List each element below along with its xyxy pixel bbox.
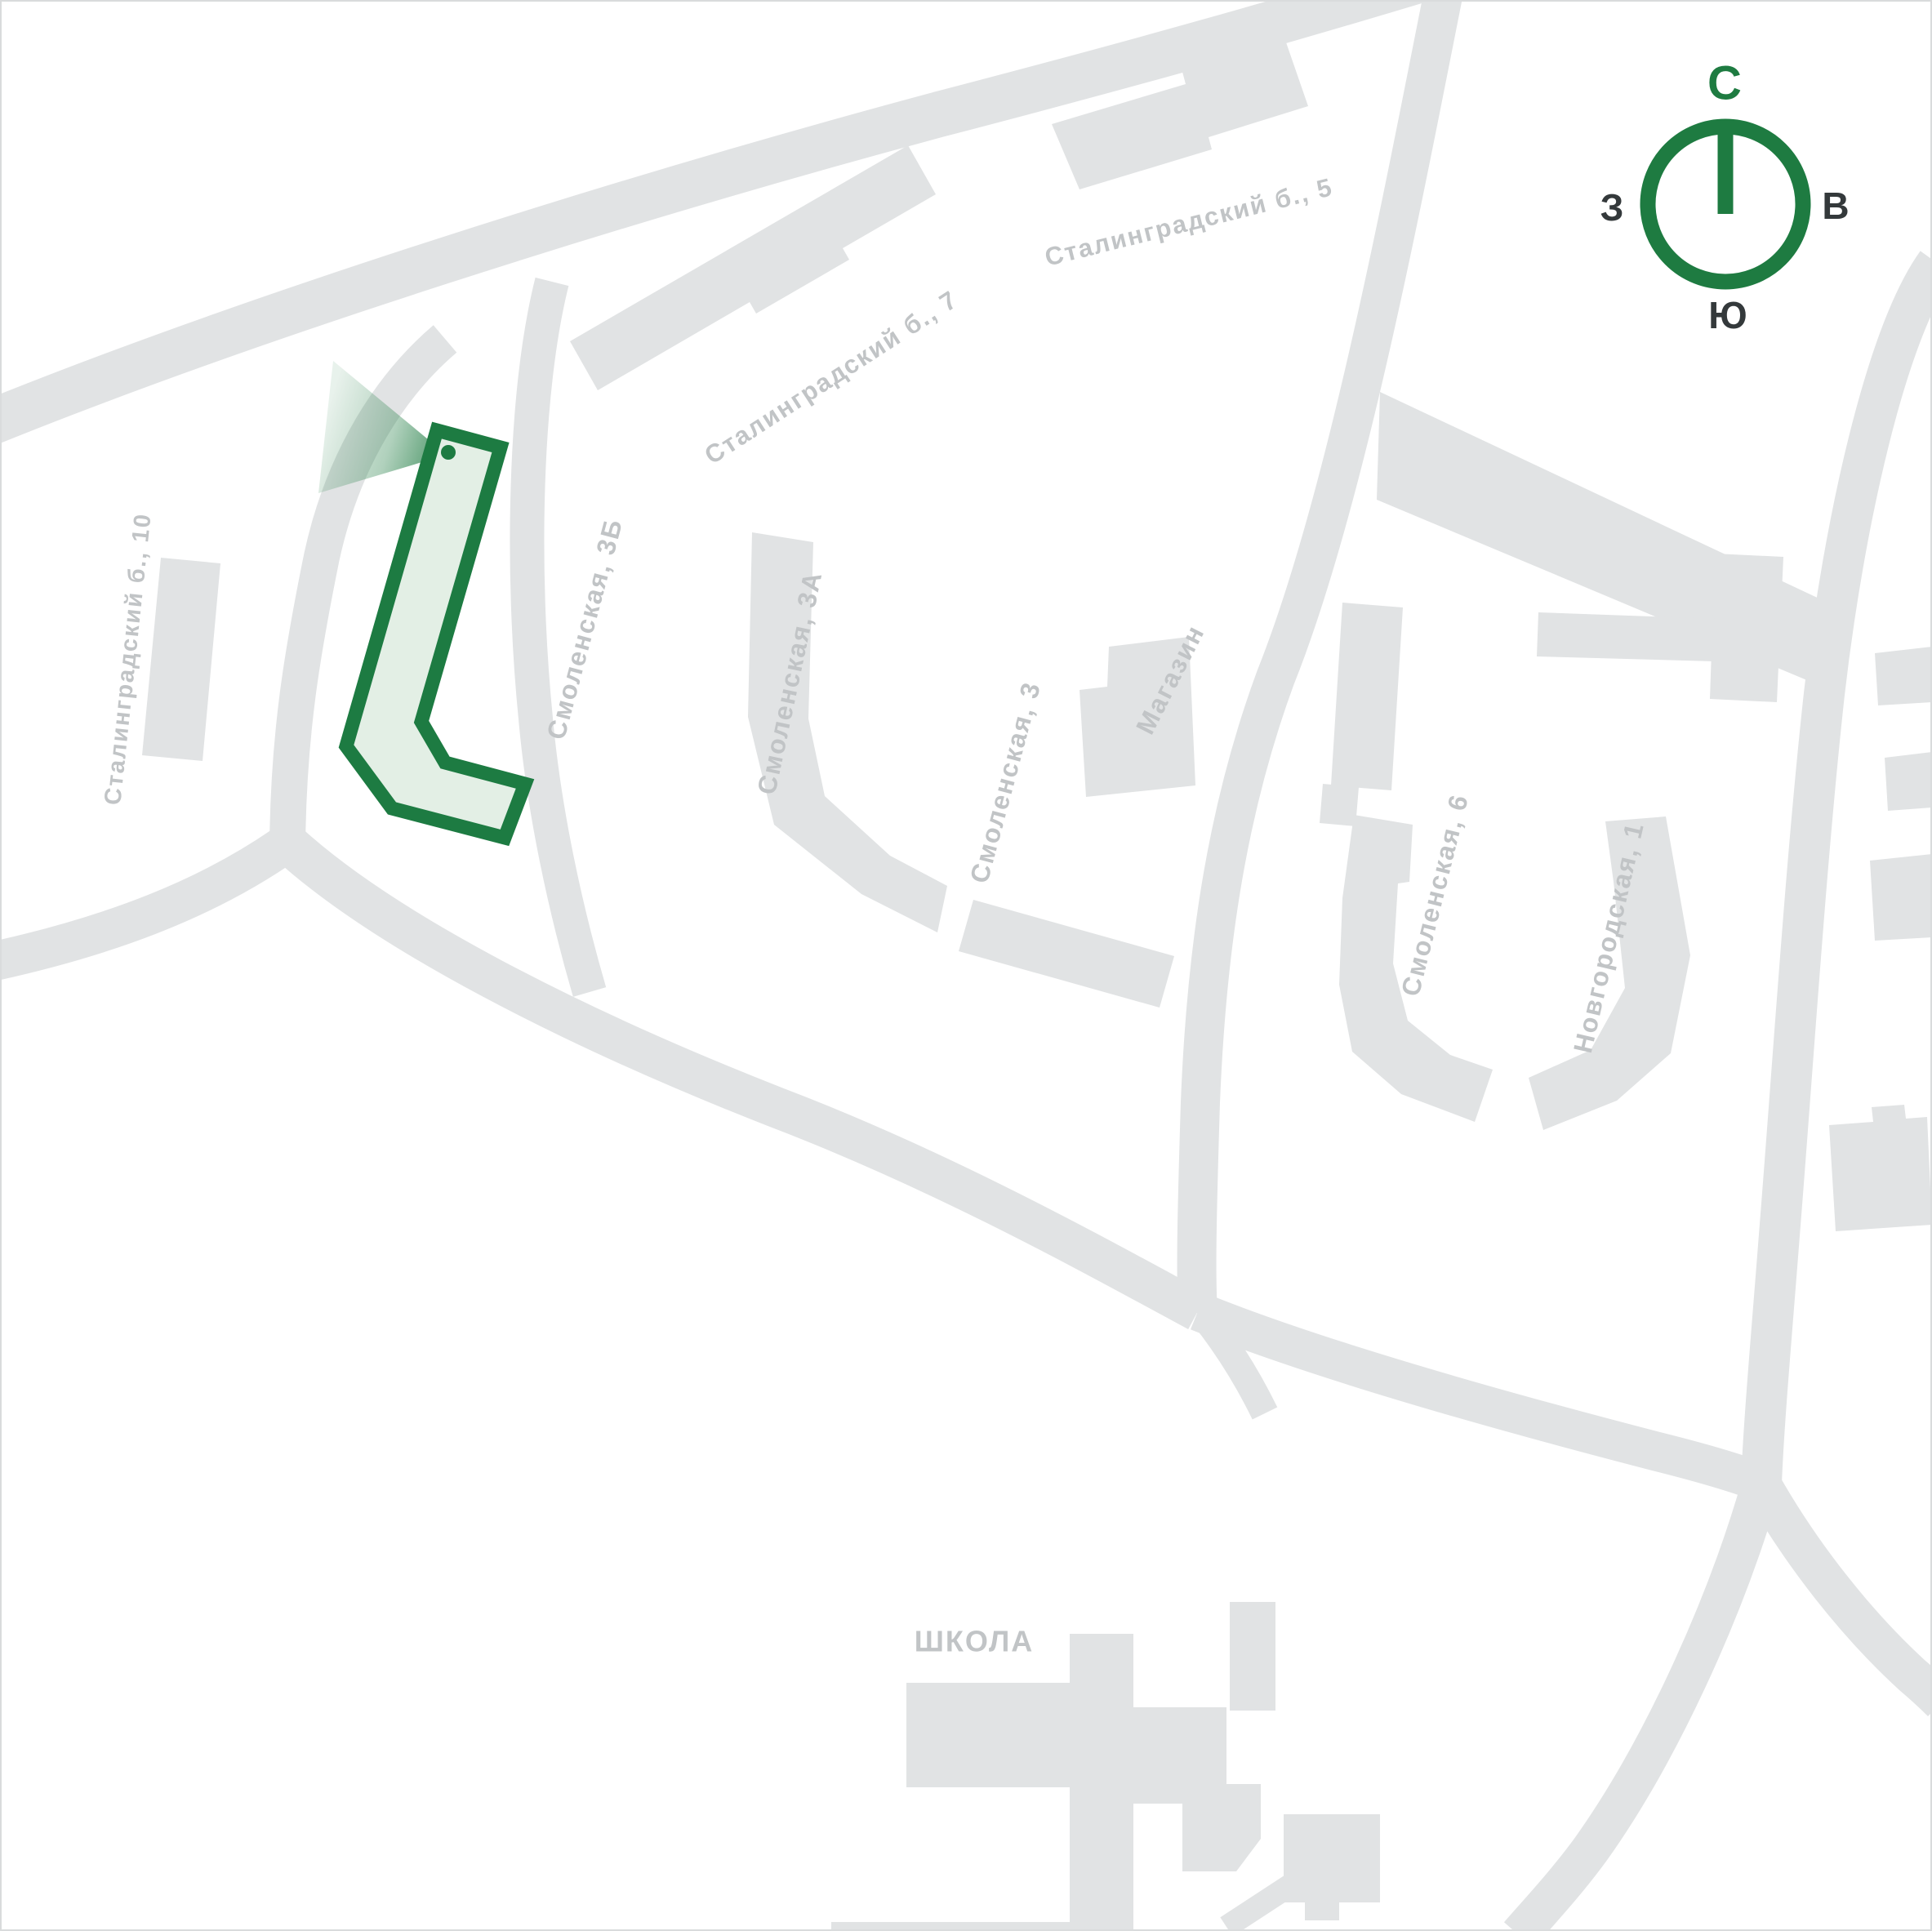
building-unlabeled-l-shape-horizontal [1537,612,1718,661]
compass-north-letter: С [1707,57,1742,110]
compass-south-letter: Ю [1708,294,1747,336]
camera-position-dot [441,445,456,460]
building-unlabeled-vertical-slab [1331,603,1403,790]
label-school: ШКОЛА [915,1625,1035,1658]
school-building-left-wing [906,1683,1075,1787]
location-map: Сталинградский б., 7 Сталинградский б., … [0,0,1932,1931]
building-right-edge-fragment-1 [1875,647,1932,705]
building-unlabeled-l-shape-vertical [1710,554,1783,702]
school-building-central-bar [1070,1634,1133,1931]
building-right-edge-fragment-3 [1870,854,1932,941]
compass-west-letter: З [1600,186,1624,229]
building-right-edge-fragment-2 [1885,752,1932,811]
school-building-annex-north [1230,1602,1275,1711]
compass-east-letter: В [1822,185,1849,227]
building-unlabeled-vertical-slab-foot [1320,784,1359,826]
